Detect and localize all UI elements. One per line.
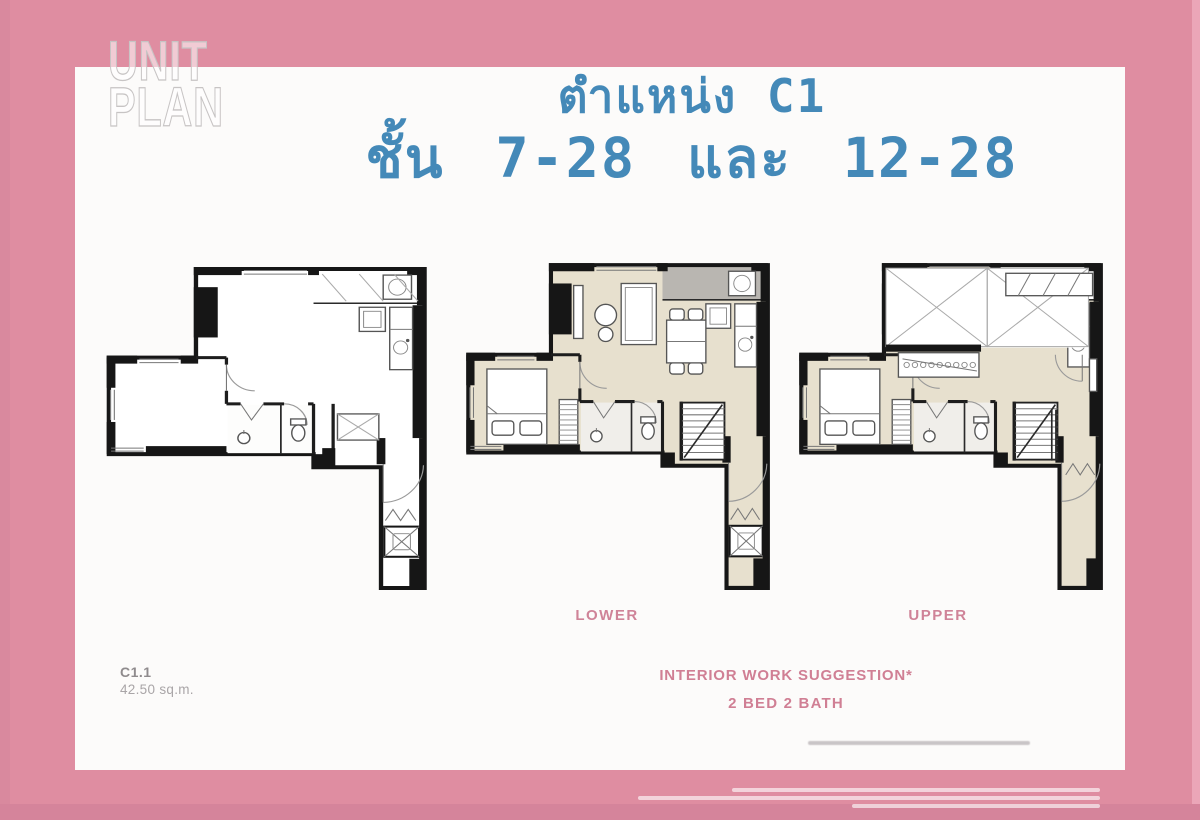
unit-code: C1.1: [120, 664, 152, 680]
white-sheet: ตำแหน่ง C1 ชั้น 7-28 และ 12-28 LOWER UPP…: [75, 67, 1125, 770]
floorplan-upper: [791, 257, 1106, 593]
unit-plan-poster: ตำแหน่ง C1 ชั้น 7-28 และ 12-28 LOWER UPP…: [0, 0, 1200, 820]
footer-fineprint-line: [638, 796, 1100, 800]
suggestion-block: INTERIOR WORK SUGGESTION* 2 BED 2 BATH: [586, 667, 986, 712]
frame-edge-left: [0, 0, 10, 820]
footer-fineprint-line: [852, 804, 1100, 808]
unit-area: 42.50 sq.m.: [120, 682, 194, 697]
floorplan-unfurnished: [98, 261, 430, 593]
watermark-plan: PLAN: [108, 84, 224, 130]
bed-bath-label: 2 BED 2 BATH: [586, 695, 986, 712]
headline-floors: ชั้น 7-28 และ 12-28: [167, 131, 1200, 186]
floorplan-lower: [458, 257, 773, 593]
upper-plan-label: UPPER: [878, 607, 998, 624]
headline-block: ตำแหน่ง C1 ชั้น 7-28 และ 12-28: [75, 67, 1200, 186]
interior-suggestion-label: INTERIOR WORK SUGGESTION*: [586, 667, 986, 684]
footer-fineprint-line: [732, 788, 1100, 792]
unit-plan-watermark: UNIT PLAN: [108, 38, 224, 131]
lower-plan-label: LOWER: [547, 607, 667, 624]
fineprint-disclaimer: [808, 741, 1030, 745]
headline-position: ตำแหน่ง C1: [167, 73, 1200, 119]
